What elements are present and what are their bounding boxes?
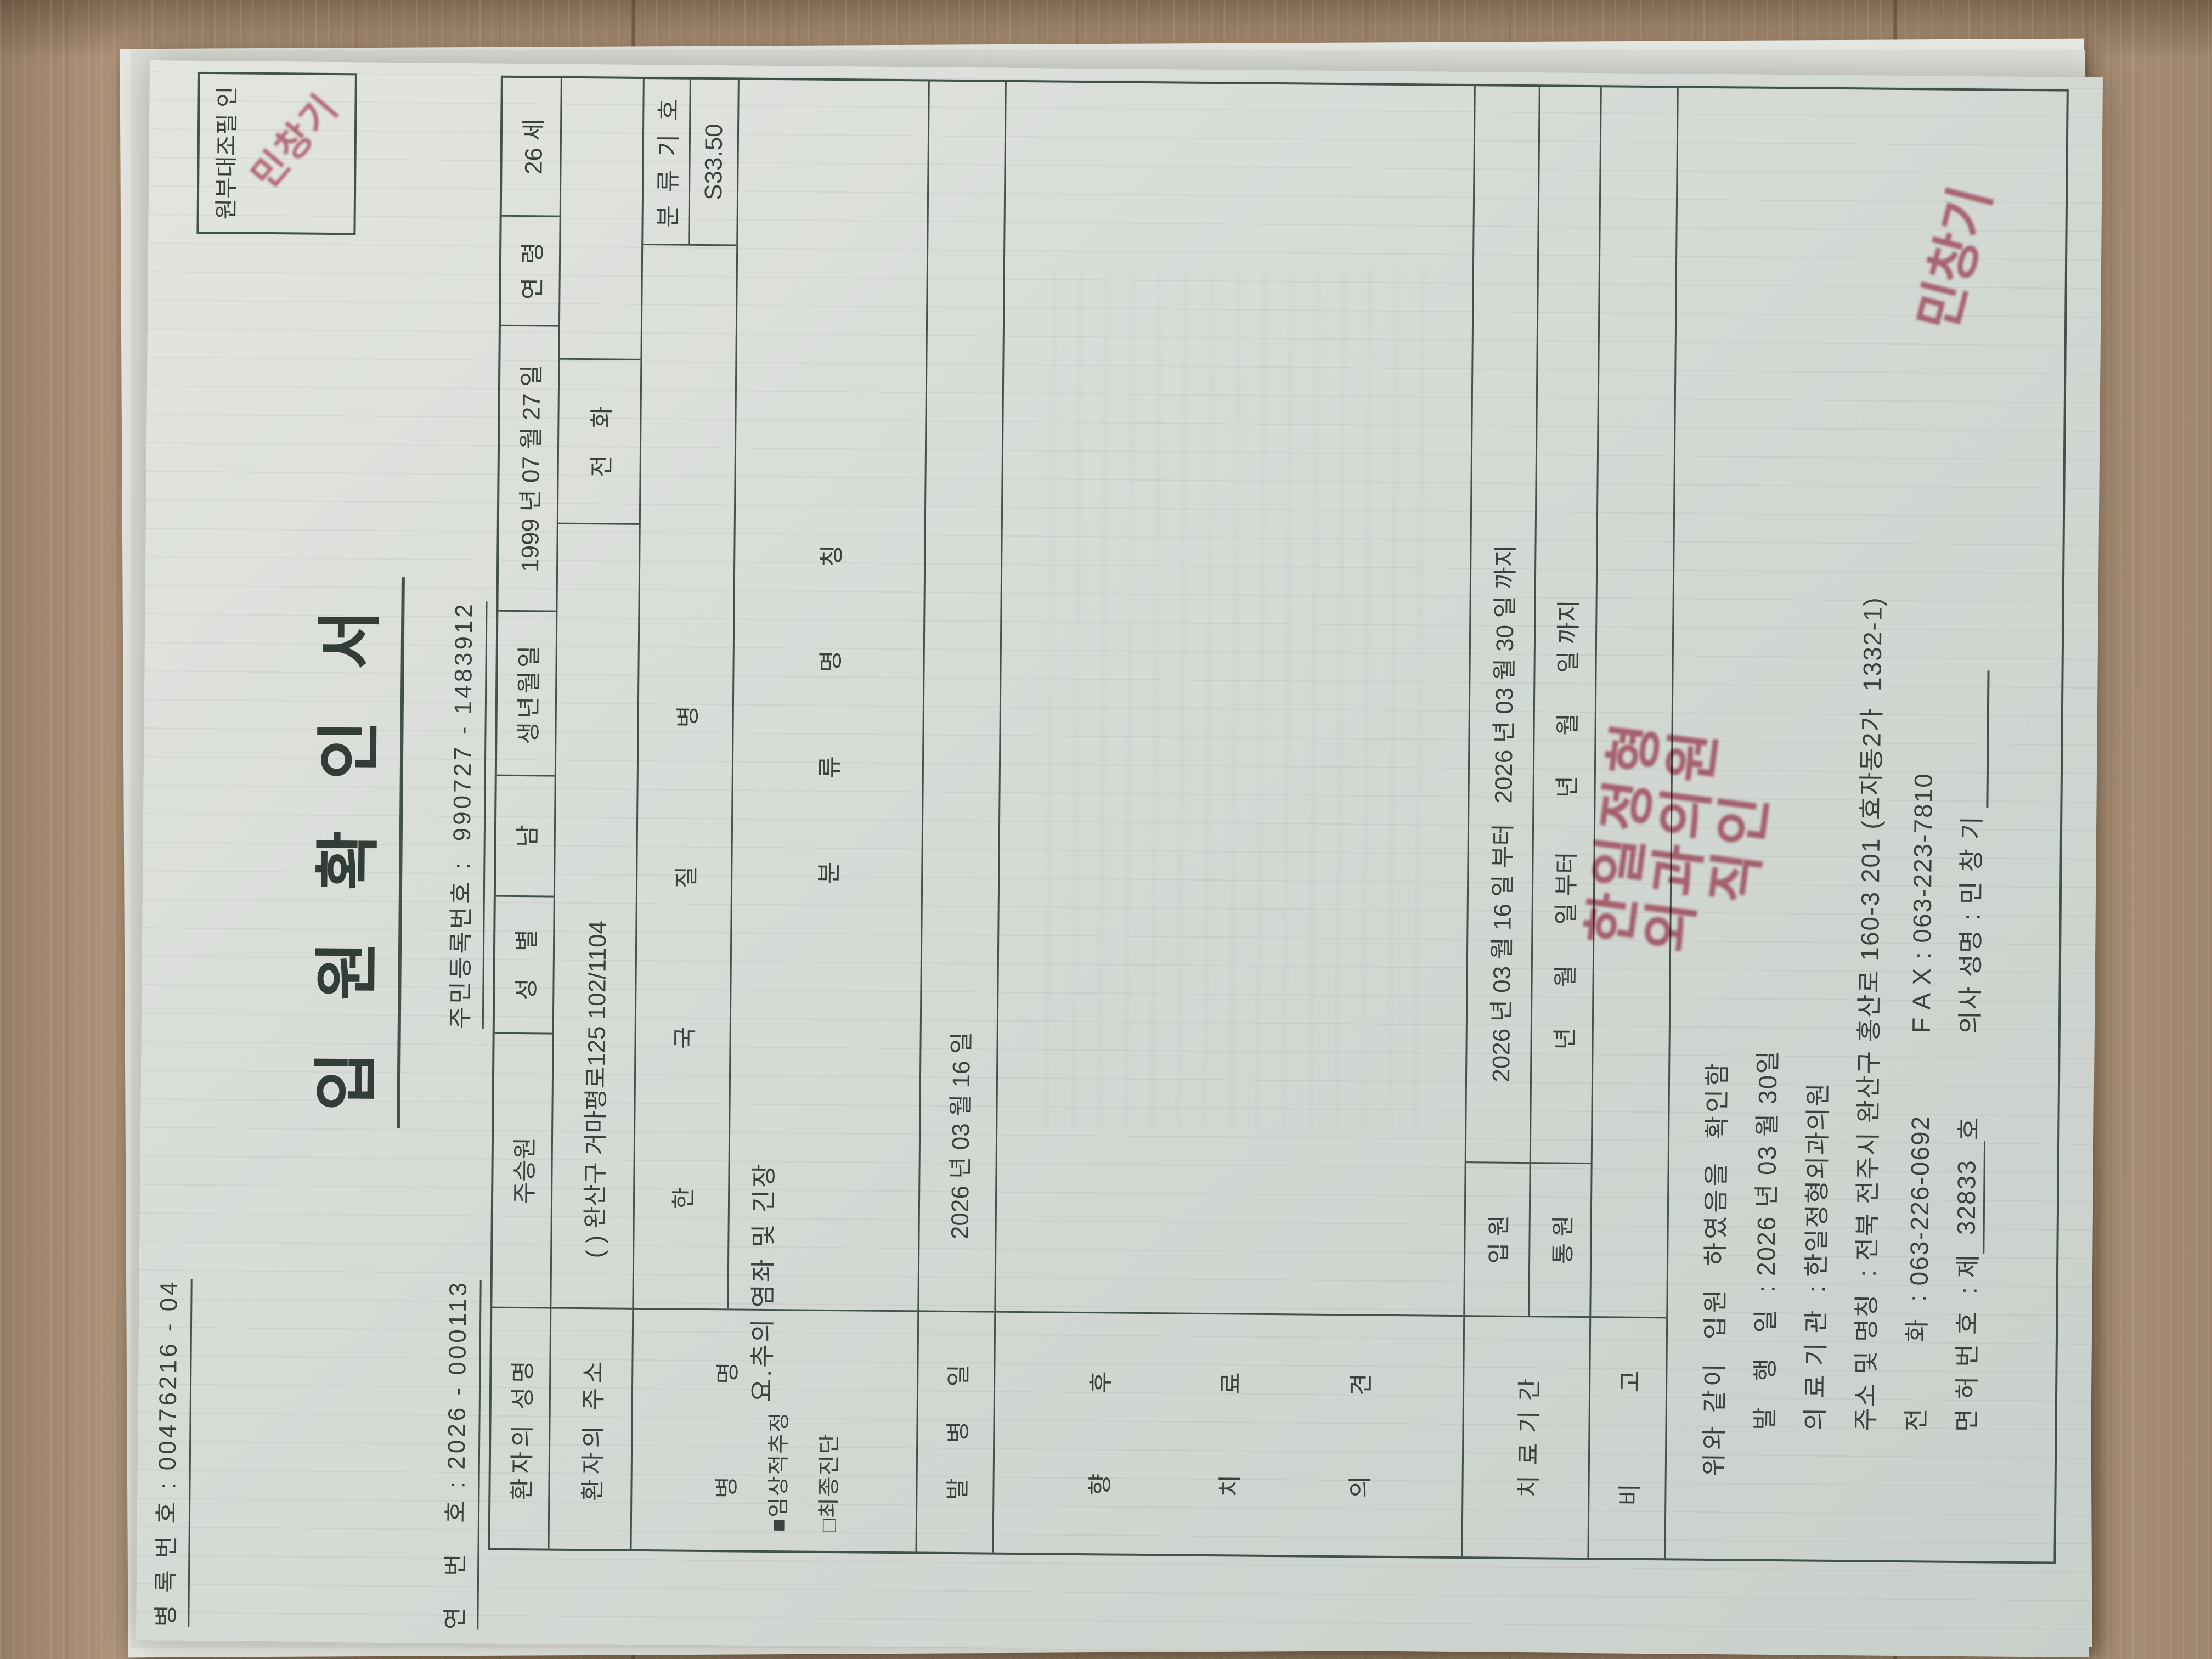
document-title: 입 원 확 인 서 xyxy=(293,577,405,1128)
remarks-value xyxy=(1591,87,1677,1317)
label-line-opinion: 의 견 xyxy=(1340,1316,1378,1556)
onset-label-char-3: 일 xyxy=(939,1364,974,1387)
birth-label: 생년월일 xyxy=(497,610,556,775)
resident-registration-line: 주민등록번호 : 990727 - 1483912 xyxy=(441,601,488,1029)
admission-certificate-page: 병 록 번 호 : 00476216 - 04 원부대조필 인 민창기 입 원 … xyxy=(136,60,2103,1657)
row-onset-date: 발 병 일 2026 년 03 월 16 일 xyxy=(915,81,1005,1552)
institution-address-value: 전북 전주시 완산구 홍산로 160-3 201 (효자동2가 1332-1) xyxy=(1847,596,1889,1261)
issue-date-label: 발 행 일 : xyxy=(1745,1276,1782,1430)
medical-institution-line: 의 료 기 관 : 한일정형외과의원 xyxy=(1795,89,1843,1430)
row-future-treatment-opinion: 향 후 치 료 의 견 xyxy=(992,82,1474,1556)
future-treatment-opinion-value xyxy=(996,82,1474,1315)
outpatient-period-value: 년 월 일 부터 년 월 일 까지 xyxy=(1530,87,1602,1163)
disease-main-cell: 요.추의 염좌 및 긴장 분 류 명 칭 xyxy=(727,80,930,1310)
age-value: 26 세 xyxy=(502,78,561,216)
rotated-document-wrapper: 병 록 번 호 : 00476216 - 04 원부대조필 인 민창기 입 원 … xyxy=(136,60,2103,1657)
remarks-char-2: 고 xyxy=(1611,1370,1646,1392)
label-line-treatment: 치 료 xyxy=(1210,1314,1247,1555)
remarks-char-1: 비 xyxy=(1610,1483,1645,1506)
medical-institution-label: 의 료 기 관 : xyxy=(1795,1277,1832,1431)
license-label: 면 허 번 호 : xyxy=(1946,1278,1984,1432)
signature-seal-line xyxy=(1965,670,1989,808)
license-suffix: 호 xyxy=(1949,1116,1985,1141)
outpatient-label: 통 원 xyxy=(1528,1162,1592,1316)
certificate-table: 환자의 성명 주승원 성 별 남 생년월일 1999 년 07 월 27 일 연… xyxy=(488,76,2068,1564)
license-prefix: 제 xyxy=(1948,1254,1984,1278)
phone-label: 전 화 xyxy=(558,358,641,523)
phone-value xyxy=(560,78,642,359)
row-patient-address: 환자의 주소 ( ) 완산구 거마평로125 102/1104 전 화 xyxy=(548,78,642,1549)
classification-code-label: 분 류 기 호 xyxy=(643,79,691,244)
birth-value: 1999 년 07 월 27 일 xyxy=(498,325,558,611)
disease-label: 병 명 xyxy=(707,1329,743,1532)
future-char-2: 후 xyxy=(1081,1371,1116,1393)
disease-name: 요.추의 염좌 및 긴장 xyxy=(742,1162,781,1402)
address-value: ( ) 완산구 거마평로125 102/1104 xyxy=(551,523,639,1308)
age-label: 연 령 xyxy=(501,215,560,325)
spacer xyxy=(1935,1033,1936,1115)
label-line-future: 향 후 xyxy=(1080,1313,1117,1554)
onset-label-char-1: 발 xyxy=(938,1477,973,1500)
treatment-period-label: 치 료 기 간 xyxy=(1463,1315,1591,1558)
issue-date-value: 2026 년 03 월 30일 xyxy=(1746,1049,1785,1276)
inpatient-period-value: 2026 년 03 월 16 일 부터 2026 년 03 월 30 일 까지 xyxy=(1466,86,1539,1162)
sex-value: 남 xyxy=(496,775,555,896)
address-label: 환자의 주소 xyxy=(549,1307,632,1549)
sex-label: 성 별 xyxy=(495,895,554,1033)
stamp-box-label: 원부대조필 xyxy=(208,114,242,220)
institution-phone-value: 063-226-0692 xyxy=(1904,1115,1936,1286)
future-treatment-opinion-label: 향 후 치 료 의 견 xyxy=(994,1311,1463,1556)
kcd-header-top: 한 국 질 병 xyxy=(634,244,736,1308)
checker-name-seal: 민창기 xyxy=(236,80,349,198)
patient-name-value: 주승원 xyxy=(492,1032,552,1307)
patient-name-label: 환자의 성명 xyxy=(490,1307,550,1549)
opinion-char-1: 의 xyxy=(1341,1476,1376,1498)
spacer xyxy=(1985,1034,1986,1116)
serial-number-line: 연 번 호 : 2026 - 000113 xyxy=(435,1280,482,1630)
institution-phone-label: 전 화 : xyxy=(1896,1285,1933,1432)
remarks-label: 비 고 xyxy=(1589,1316,1666,1558)
fax-value: 063-223-7810 xyxy=(1907,772,1938,943)
onset-label-char-2: 병 xyxy=(938,1421,973,1443)
inpatient-label: 입 원 xyxy=(1465,1161,1529,1316)
medical-institution-value: 한일정형외과의원 xyxy=(1797,1082,1835,1277)
show-through-ghost-marks xyxy=(1044,267,1425,1130)
doctor-name-value: 민 창 기 xyxy=(1951,815,1988,905)
disease-label-char-1: 병 xyxy=(707,1476,742,1499)
final-diagnosis-checkbox: □최종진단 xyxy=(811,1330,844,1532)
opinion-char-2: 견 xyxy=(1341,1373,1376,1396)
original-check-stamp-box: 원부대조필 인 민창기 xyxy=(196,72,357,235)
institution-official-seal: 한일정형 외과의원 직인 xyxy=(1579,708,1786,970)
institution-address-label: 주소 및 명칭 : xyxy=(1846,1261,1883,1431)
stamp-box-suffix: 인 xyxy=(208,86,242,108)
onset-date-value: 2026 년 03 월 16 일 xyxy=(919,82,1005,1311)
kcd-header-bottom: 분 류 명 칭 xyxy=(809,506,848,884)
row-treatment-period: 치 료 기 간 입 원 2026 년 03 월 16 일 부터 2026 년 0… xyxy=(1461,86,1600,1558)
fax-label: F A X : xyxy=(1906,943,1937,1033)
institution-address-line: 주소 및 명칭 : 전북 전주시 완산구 홍산로 160-3 201 (효자동2… xyxy=(1846,89,1893,1431)
photo-of-admission-certificate: { "stamp_box": { "label": "원부대조필", "suff… xyxy=(0,0,2212,1659)
treatment-char-1: 치 xyxy=(1210,1475,1245,1497)
classification-code-value: S33.50 xyxy=(690,80,738,245)
onset-date-label: 발 병 일 xyxy=(917,1310,994,1552)
doctor-name-label: 의사 성명 : xyxy=(1950,904,1988,1034)
license-number: 32833 xyxy=(1951,1141,1985,1254)
future-char-1: 향 xyxy=(1080,1474,1115,1496)
row-disease: 병 명 ■임상적추정 □최종진단 한 국 질 병 분 류 기 호 S33.50 … xyxy=(630,79,928,1551)
record-number-line: 병 록 번 호 : 00476216 - 04 xyxy=(146,1279,193,1627)
treatment-char-2: 료 xyxy=(1211,1372,1246,1395)
disease-label-char-2: 명 xyxy=(708,1362,743,1384)
